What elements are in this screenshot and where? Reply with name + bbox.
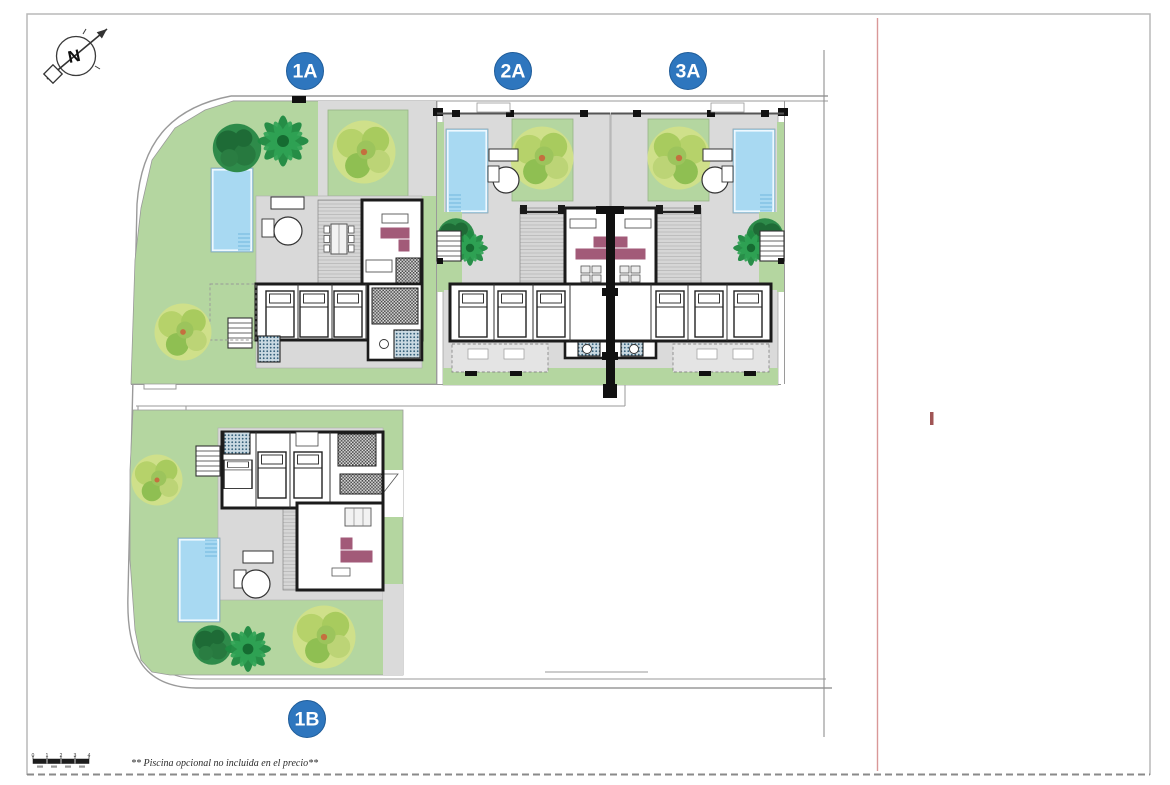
- scale-bar: 0 1 2 3 4: [32, 753, 91, 768]
- tree: [132, 455, 183, 506]
- site-plan-page: N 1A 2A 3A 1B 0 1 2 3 4: [0, 0, 1170, 785]
- disclaimer-text: ** Piscina opcional no incluida en el pr…: [131, 758, 318, 769]
- unit-badge-1a-label: 1A: [293, 61, 318, 83]
- tree: [155, 304, 212, 361]
- palm-tree: [258, 116, 309, 167]
- tree: [192, 625, 232, 665]
- unit-badge-3a-label: 3A: [676, 61, 701, 83]
- tree: [293, 606, 356, 669]
- site-plan-canvas: N 1A 2A 3A 1B 0 1 2 3 4: [0, 0, 1170, 785]
- compass-rose: N: [44, 29, 107, 83]
- plot-2a: [433, 101, 610, 385]
- unit-badge-2a: 2A: [495, 53, 532, 90]
- tree: [333, 121, 396, 184]
- plot-1a: [131, 96, 437, 384]
- pool-1b: [178, 538, 220, 622]
- unit-badge-2a-label: 2A: [501, 61, 526, 83]
- pool-1a: [211, 168, 253, 252]
- tree: [213, 124, 261, 172]
- compass-north-letter: N: [66, 46, 82, 67]
- unit-badge-3a: 3A: [670, 53, 707, 90]
- unit-badge-1a: 1A: [287, 53, 324, 90]
- plot-3a: [611, 101, 788, 385]
- red-tick-mark: [930, 412, 934, 425]
- unit-badge-1b-label: 1B: [295, 709, 320, 731]
- plot-1b: [130, 410, 403, 675]
- palm-tree: [225, 626, 271, 672]
- unit-badge-1b: 1B: [289, 701, 326, 738]
